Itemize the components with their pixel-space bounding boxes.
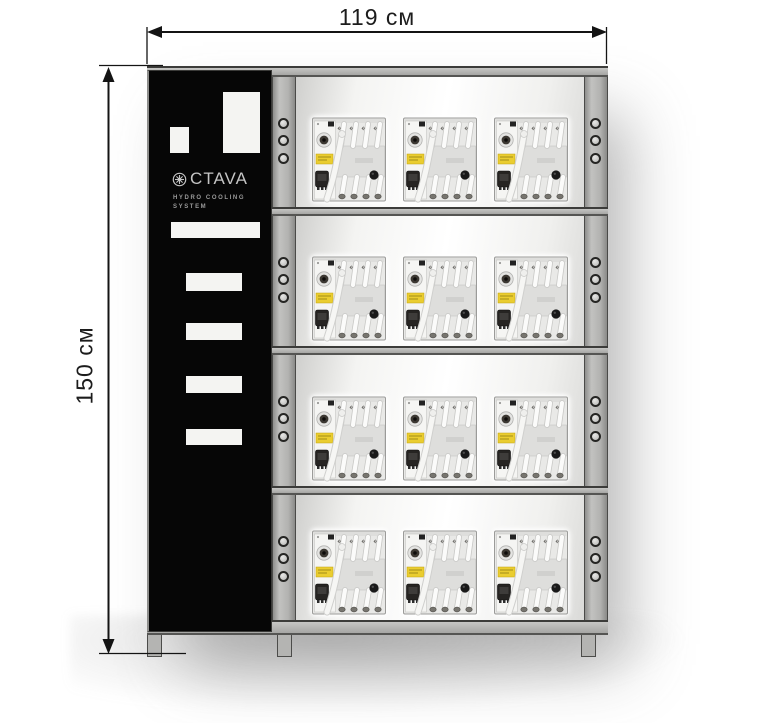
shelf-row-4: « « « « [296,495,584,620]
mounting-hole [278,553,289,564]
miner-unit-graphic: « « « « [402,528,478,616]
miner-unit-graphic: « « « « [402,394,478,482]
shelf-row-1: « « « « [296,77,584,207]
rack-leg-right [581,635,596,657]
shelf-bar-1 [272,207,608,216]
vent-slot [186,376,242,393]
miner-unit-graphic: « « « « [311,115,387,203]
mounting-hole [590,571,601,582]
height-dimension-label: 150 см [72,311,99,421]
vent-slot [170,127,189,153]
miner-unit-graphic: « « « « [311,254,387,342]
miner-unit-graphic: « « « « [493,394,569,482]
miner-unit: « « « « [402,254,478,342]
rack-leg-left [147,635,162,657]
mounting-hole [590,135,601,146]
miner-unit: « « « « [402,394,478,482]
mounting-hole [590,257,601,268]
mounting-hole [590,153,601,164]
miner-unit: « « « « [493,394,569,482]
miner-unit-graphic: « « « « [402,254,478,342]
mounting-hole [278,135,289,146]
shelf-row-2: « « « « [296,216,584,346]
miner-unit: « « « « [311,254,387,342]
vent-slot [186,323,242,340]
shelf-row-3: « « « « [296,355,584,486]
miner-unit: « « « « [311,394,387,482]
mounting-hole [278,536,289,547]
miner-unit-graphic: « « « « [311,528,387,616]
miner-unit: « « « « [493,528,569,616]
mounting-hole [278,274,289,285]
brand-panel: CTAVA HYDRO COOLING SYSTEM [147,70,272,632]
width-dimension-label: 119 см [147,4,607,31]
miner-unit-graphic: « « « « [493,528,569,616]
width-dimension-line [147,27,607,64]
miner-unit: « « « « [493,115,569,203]
miner-unit: « « « « [311,528,387,616]
mounting-hole [278,413,289,424]
mounting-hole [590,536,601,547]
brand-subtitle-2: SYSTEM [173,204,207,210]
miner-unit: « « « « [493,254,569,342]
brand-subtitle-1: HYDRO COOLING [173,195,245,201]
rack-leg-middle [277,635,292,657]
vent-slot [186,273,242,291]
mounting-hole [278,571,289,582]
mounting-hole [278,153,289,164]
mounting-hole [590,292,601,303]
mounting-hole [590,274,601,285]
miner-unit-graphic: « « « « [493,254,569,342]
brand-logo: CTAVA [149,169,271,189]
vent-slot [171,222,260,238]
vent-slot [186,429,242,445]
diagram-canvas: « « « « [0,0,757,723]
mounting-hole [590,431,601,442]
shelf-bar-2 [272,346,608,355]
miner-unit-graphic: « « « « [311,394,387,482]
mounting-hole [278,292,289,303]
shelf-bar-3 [272,486,608,495]
miner-unit: « « « « [402,528,478,616]
mounting-hole [590,553,601,564]
mounting-hole [278,257,289,268]
miner-unit-graphic: « « « « [493,115,569,203]
mounting-hole [590,396,601,407]
octava-gear-icon [172,172,187,187]
brand-logo-text: CTAVA [190,169,248,189]
mounting-hole [590,413,601,424]
mounting-hole [278,431,289,442]
vent-slot [223,92,260,153]
arrowhead-up-icon [103,67,115,82]
mounting-hole [278,396,289,407]
mounting-hole [590,118,601,129]
miner-unit: « « « « [311,115,387,203]
miner-unit: « « « « [402,115,478,203]
miner-unit-graphic: « « « « [402,115,478,203]
mounting-hole [278,118,289,129]
